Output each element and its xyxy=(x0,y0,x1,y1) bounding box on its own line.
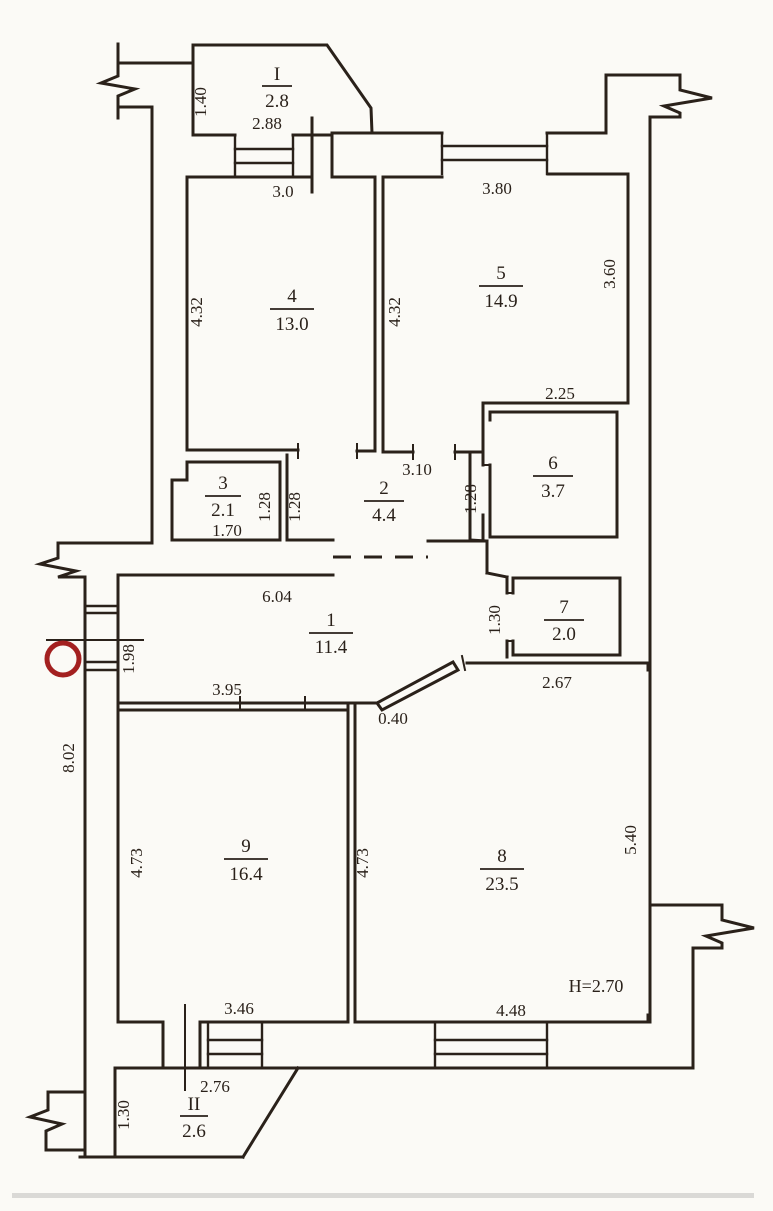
balcony1-outline xyxy=(193,45,372,135)
dim-room8-right: 5.40 xyxy=(621,825,640,855)
dim-room3-right: 1.28 xyxy=(255,492,274,522)
dim-balcony1-depth: 1.40 xyxy=(191,87,210,117)
room2-area: 4.4 xyxy=(372,505,396,526)
room9-area: 16.4 xyxy=(229,864,263,885)
dim-balcony2-depth: 1.30 xyxy=(114,1100,133,1130)
dim-hall-top: 6.04 xyxy=(262,587,292,606)
room6-area: 3.7 xyxy=(541,481,565,502)
dim-room3-bottom: 1.70 xyxy=(212,521,242,540)
room1-area: 11.4 xyxy=(315,637,348,658)
scan-artifact-line xyxy=(12,1193,754,1198)
break-symbol-top-right xyxy=(664,75,712,117)
red-circle-marker xyxy=(47,643,79,675)
dim-door8-width: 0.40 xyxy=(378,709,408,728)
room5-window xyxy=(442,133,547,174)
balcony1-door xyxy=(312,118,332,192)
dim-room2-top: 3.10 xyxy=(402,460,432,479)
room4-area: 13.0 xyxy=(275,314,308,335)
floor-plan-drawing: I 2.8 4 13.0 5 14.9 6 3.7 3 2.1 2 4.4 1 … xyxy=(0,0,773,1211)
room1-number: 1 xyxy=(326,610,336,631)
room5-area: 14.9 xyxy=(484,291,517,312)
dim-hall-window: 1.98 xyxy=(119,644,138,674)
room6-number: 6 xyxy=(548,453,558,474)
dim-room5-right: 3.60 xyxy=(600,259,619,289)
diagonal-door xyxy=(377,656,465,710)
room3-number: 3 xyxy=(218,473,228,494)
dim-room9-bottom: 3.46 xyxy=(224,999,254,1018)
dim-room8-left: 4.73 xyxy=(353,848,372,878)
dim-room6-top: 2.25 xyxy=(545,384,575,403)
dim-outer-left: 8.02 xyxy=(59,743,78,773)
room7-area: 2.0 xyxy=(552,624,576,645)
balcony1-window xyxy=(235,135,293,177)
room8-window xyxy=(435,1022,547,1068)
balcony1-number: I xyxy=(274,64,280,85)
dim-room4-top: 3.0 xyxy=(272,182,293,201)
room3-area: 2.1 xyxy=(211,500,235,521)
dim-room2-left: 1.28 xyxy=(285,492,304,522)
room8-number: 8 xyxy=(497,846,507,867)
break-symbol-bottom-right xyxy=(706,905,754,948)
dim-room7-left: 1.30 xyxy=(485,605,504,635)
dim-room8-bottom: 4.48 xyxy=(496,1001,526,1020)
room7-number: 7 xyxy=(559,597,569,618)
balcony2-area: 2.6 xyxy=(182,1121,206,1142)
balcony1-area: 2.8 xyxy=(265,91,289,112)
room9-number: 9 xyxy=(241,836,251,857)
dim-hall-bottom: 3.95 xyxy=(212,680,242,699)
room4-number: 4 xyxy=(287,286,297,307)
room8-area: 23.5 xyxy=(485,874,518,895)
room9-balcony-door xyxy=(163,1022,200,1068)
ceiling-height-note: H=2.70 xyxy=(569,976,624,996)
dim-room5-top: 3.80 xyxy=(482,179,512,198)
room5-number: 5 xyxy=(496,263,506,284)
dim-balcony1-width: 2.88 xyxy=(252,114,282,133)
room9-window xyxy=(208,1022,262,1068)
dim-room8-top: 2.67 xyxy=(542,673,572,692)
break-symbol-mid-left xyxy=(40,543,85,577)
dim-room6-left: 1.28 xyxy=(461,484,480,514)
floor-plan-page: I 2.8 4 13.0 5 14.9 6 3.7 3 2.1 2 4.4 1 … xyxy=(0,0,773,1211)
room2-number: 2 xyxy=(379,478,389,499)
room2-walls xyxy=(287,455,507,577)
balcony1-walls xyxy=(193,45,372,135)
dim-room9-left: 4.73 xyxy=(127,848,146,878)
room5-walls xyxy=(383,174,628,459)
dim-balcony2-width: 2.76 xyxy=(200,1077,230,1096)
break-symbol-bottom-left xyxy=(30,1092,85,1150)
balcony2-number: II xyxy=(188,1094,201,1115)
dim-room4-left: 4.32 xyxy=(187,297,206,327)
dim-room5-left: 4.32 xyxy=(385,297,404,327)
